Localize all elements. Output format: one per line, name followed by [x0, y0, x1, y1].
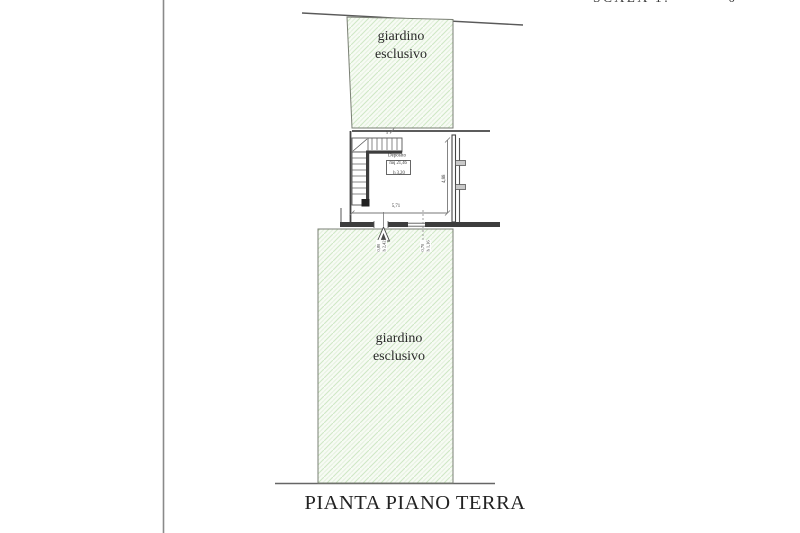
- door-dimension-label: 0,80 h 2,42: [376, 240, 387, 252]
- window-dimension-label: 0,70 h 1,16: [420, 240, 431, 252]
- wall-bottom-seg1: [340, 222, 374, 227]
- dim-room-depth: 4,88: [441, 175, 447, 183]
- stair-run-vertical: [352, 152, 368, 205]
- dim-room-width: 5,71: [384, 203, 408, 209]
- wall-bottom-seg2: [388, 222, 408, 227]
- wall-stub-upper: [456, 161, 466, 166]
- wall-bottom-seg3: [425, 222, 500, 227]
- floorplan-sheet: SCALA 1:0 giardino esclusivo giardino es…: [0, 0, 800, 533]
- floorplan-drawing: [0, 0, 800, 533]
- room-name-label: Deposito: [386, 152, 408, 158]
- garden-top-label: giardino esclusivo: [345, 28, 457, 64]
- garden-bottom-label-line1: giardino: [343, 330, 455, 348]
- stair-newel-pillar: [362, 199, 370, 207]
- cropped-header-right: 0: [728, 0, 737, 5]
- wall-right: [452, 135, 456, 222]
- wall-stub-lower: [456, 185, 466, 190]
- garden-top-label-line2: esclusivo: [345, 46, 457, 64]
- window-height-label: h 1,16: [426, 240, 432, 251]
- room-height-label: h 3,20: [393, 169, 405, 174]
- garden-bottom-label-line2: esclusivo: [343, 348, 455, 366]
- door-height-label: h 2,42: [382, 240, 388, 251]
- room-data-box: mq 21,46 h 3,20: [386, 160, 411, 175]
- sheet-title: PIANTA PIANO TERRA: [265, 492, 565, 515]
- cropped-header-left: SCALA 1:: [593, 0, 670, 5]
- garden-bottom-label: giardino esclusivo: [343, 330, 455, 366]
- garden-top-label-line1: giardino: [345, 28, 457, 46]
- room-area-label: mq 21,46: [390, 160, 408, 165]
- dim-top-tick: 5: [386, 130, 388, 136]
- cropped-header-text: SCALA 1:0: [593, 0, 793, 5]
- stair-wall-vertical: [366, 151, 369, 205]
